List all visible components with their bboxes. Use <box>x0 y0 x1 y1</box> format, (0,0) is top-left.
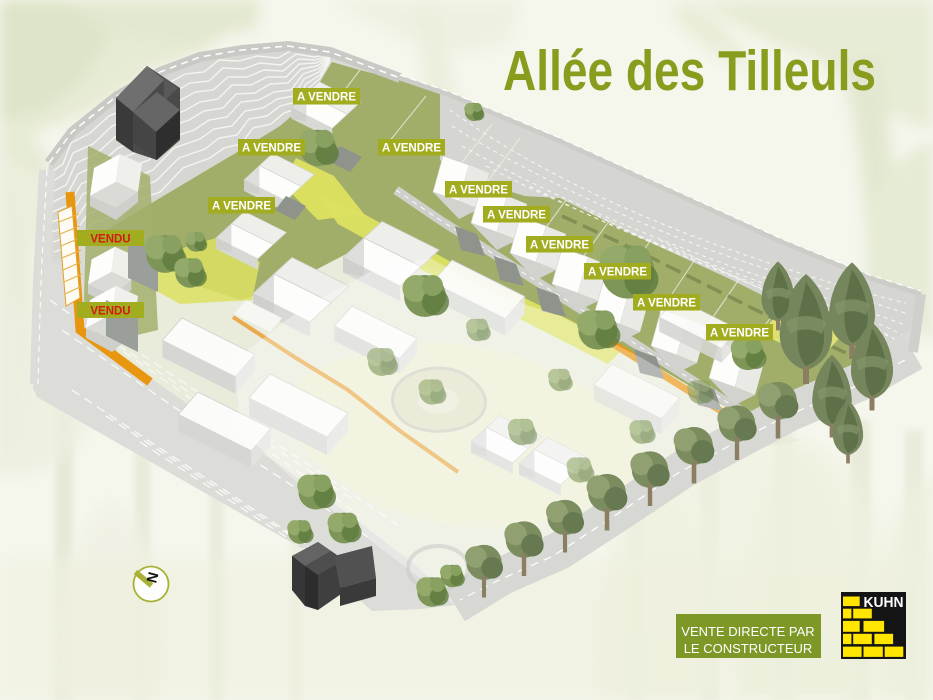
svg-text:VENTE DIRECTE PAR: VENTE DIRECTE PAR <box>681 624 814 639</box>
svg-text:A VENDRE: A VENDRE <box>637 298 696 310</box>
svg-text:A VENDRE: A VENDRE <box>530 240 589 252</box>
svg-text:A VENDRE: A VENDRE <box>382 143 441 155</box>
svg-text:VENDU: VENDU <box>90 234 130 246</box>
svg-text:A VENDRE: A VENDRE <box>487 210 546 222</box>
svg-text:LE CONSTRUCTEUR: LE CONSTRUCTEUR <box>684 641 813 656</box>
svg-text:A VENDRE: A VENDRE <box>212 201 271 213</box>
svg-text:A VENDRE: A VENDRE <box>588 267 647 279</box>
svg-text:A VENDRE: A VENDRE <box>449 185 508 197</box>
svg-text:A VENDRE: A VENDRE <box>297 92 356 104</box>
svg-text:VENDU: VENDU <box>90 306 130 318</box>
svg-text:KUHN: KUHN <box>864 595 904 611</box>
svg-text:A VENDRE: A VENDRE <box>242 143 301 155</box>
svg-text:Allée des Tilleuls: Allée des Tilleuls <box>503 39 876 103</box>
svg-text:A VENDRE: A VENDRE <box>710 328 769 340</box>
